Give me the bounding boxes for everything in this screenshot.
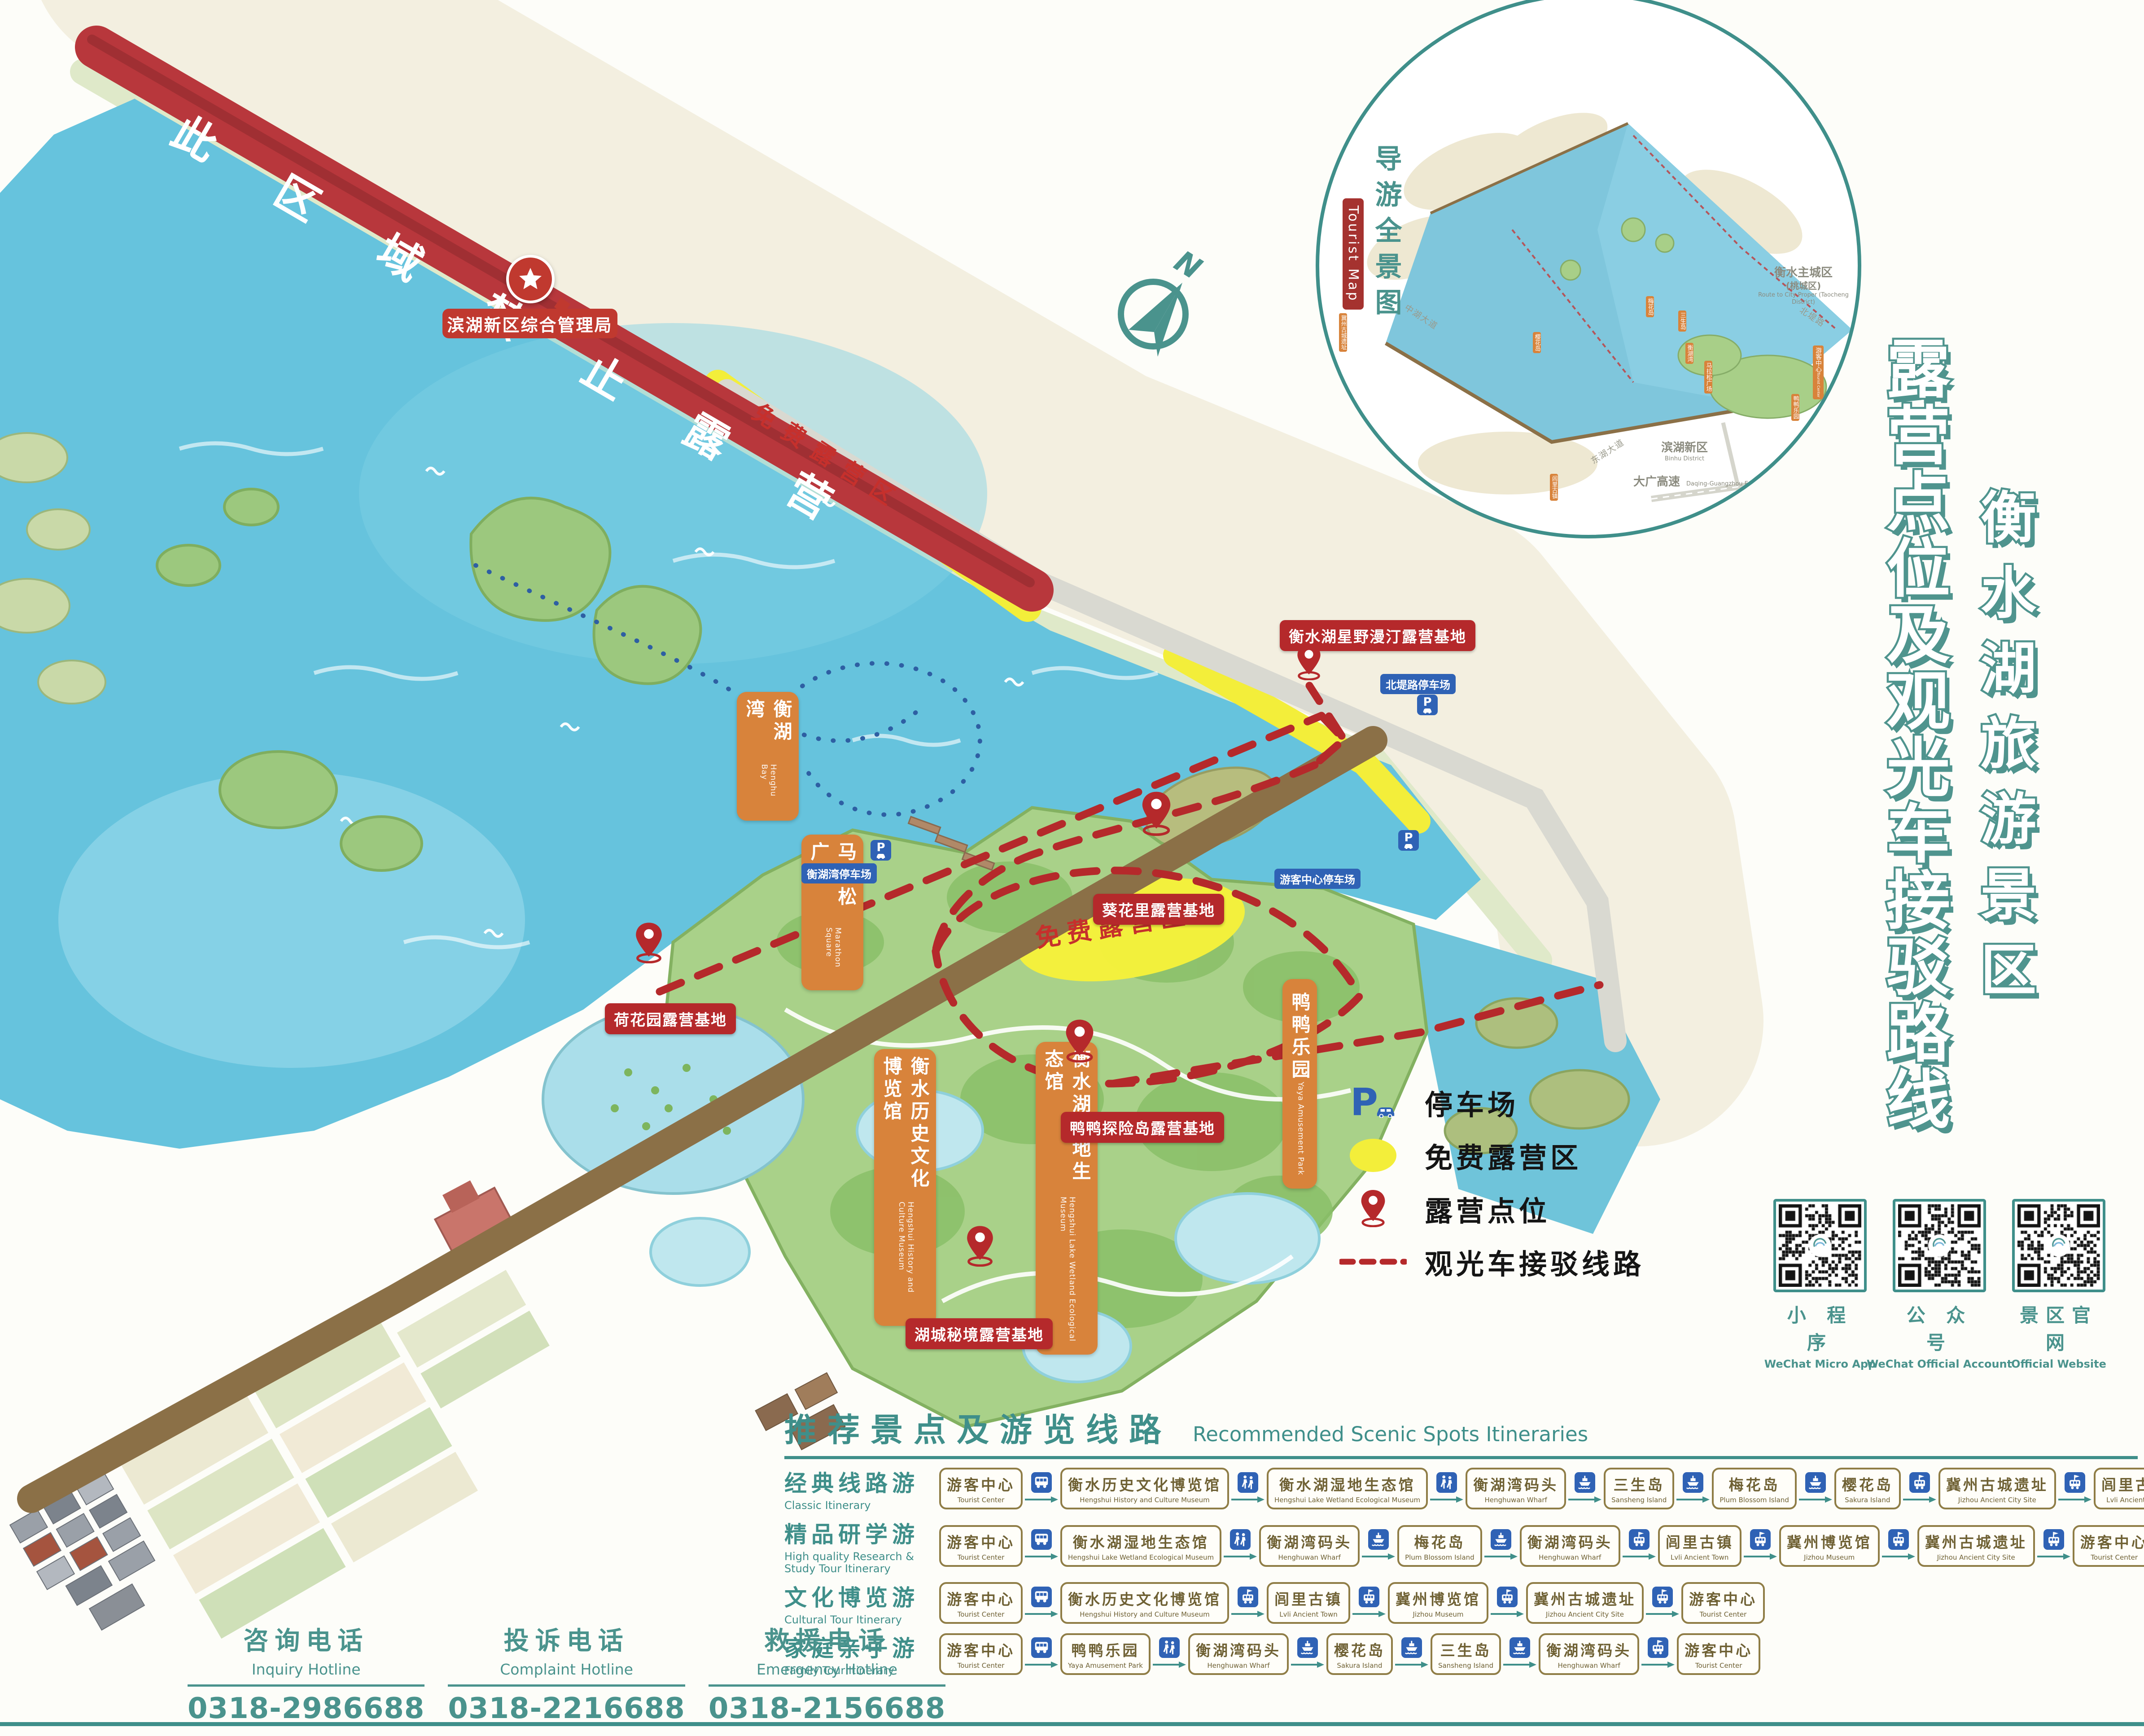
stop-name-zh: 三生岛 — [1614, 1473, 1665, 1495]
inset-poi-tag: 冀州博览馆 — [1335, 376, 1343, 409]
camp-pin-icon — [633, 921, 665, 963]
tram-icon — [2065, 1472, 2085, 1493]
stop-name-en: Henghuwan Wharf — [1539, 1553, 1601, 1561]
tram-icon — [1629, 1529, 1650, 1550]
route-arrow-icon — [1394, 1661, 1429, 1670]
qr-label-zh: 景区官网 — [2011, 1300, 2106, 1355]
itinerary-stop: 闾里古镇Lvli Ancient Town — [1658, 1525, 1741, 1567]
car-icon — [1375, 1106, 1396, 1119]
stop-name-en: Henghuwan Wharf — [1485, 1496, 1547, 1504]
itinerary-row: 家庭亲子游Family Tour Itinerary游客中心Tourist Ce… — [784, 1631, 2138, 1677]
itinerary-stop: 梅花岛Plum Blossom Island — [1712, 1468, 1797, 1509]
stop-name-en: Jizhou Ancient City Site — [1958, 1496, 2036, 1504]
transit-connector — [1024, 1472, 1059, 1505]
route-arrow-icon — [1152, 1661, 1187, 1670]
boat-icon — [1510, 1637, 1530, 1658]
itinerary-stop: 衡水湖湿地生态馆Hengshui Lake Wetland Ecological… — [1060, 1525, 1221, 1567]
tram-icon — [1497, 1587, 1518, 1607]
poster: 此区域禁止露营 免费露营区 免费露营区 滨湖新区综合管理局 N 衡湖湾Hengh… — [0, 0, 2144, 1736]
legend-label: 露营点位 — [1425, 1189, 1550, 1229]
stop-name-zh: 闾里古镇 — [1666, 1530, 1734, 1552]
route-arrow-icon — [1352, 1610, 1387, 1620]
route-arrow-icon — [1290, 1661, 1325, 1670]
stop-name-zh: 冀州博览馆 — [1787, 1530, 1872, 1552]
boat-icon — [1368, 1529, 1389, 1550]
itinerary-stop: 冀州古城遗址Jizhou Ancient City Site — [1917, 1525, 2035, 1567]
qr-label-en: WeChat Micro App — [1764, 1358, 1876, 1370]
stop-name-en: Lvli Ancient Town — [1671, 1553, 1728, 1561]
itinerary-stop: 衡湖湾码头Henghuwan Wharf — [1466, 1468, 1566, 1509]
hotline-item: 咨询电话Inquiry Hotline0318-2986688 — [188, 1621, 424, 1725]
inset-poi-tag: 三生岛 — [1678, 310, 1686, 332]
inset-poi-tag: 梅花岛 — [1646, 296, 1654, 317]
stop-name-zh: 梅花岛 — [1729, 1473, 1780, 1495]
transit-connector — [1902, 1472, 1937, 1505]
transit-connector — [1230, 1472, 1265, 1505]
walk-icon — [1159, 1637, 1180, 1658]
itinerary-row-label: 精品研学游High quality Research & Study Tour … — [784, 1517, 939, 1575]
tram-icon — [1652, 1587, 1673, 1607]
itinerary-title-zh: 推荐景点及游览线路 — [784, 1404, 1172, 1451]
itinerary-row: 文化博览游Cultural Tour Itinerary游客中心Tourist … — [784, 1580, 2138, 1627]
itinerary-stop: 游客中心Tourist Center — [1677, 1633, 1760, 1675]
poster-main-title: 露营点位及观光车接驳路线 — [1866, 336, 1958, 1133]
camp-site-label: 荷花园露营基地 — [605, 1003, 736, 1034]
stop-name-zh: 衡水历史文化博览馆 — [1068, 1587, 1221, 1609]
inset-tag: Tourist Map — [1343, 198, 1364, 310]
stop-name-en: Tourist Center — [958, 1662, 1005, 1670]
route-arrow-icon — [1230, 1610, 1265, 1620]
stop-name-zh: 衡湖湾码头 — [1546, 1639, 1632, 1660]
itinerary-stop: 闾里古镇Lvli Ancient Town — [2094, 1468, 2144, 1509]
route-arrow-icon — [1024, 1610, 1059, 1620]
boat-icon — [1805, 1472, 1826, 1493]
transit-connector — [1230, 1587, 1265, 1620]
hotline-label-zh: 投诉电话 — [504, 1621, 630, 1657]
route-arrow-icon — [1645, 1610, 1680, 1620]
itinerary-section: 推荐景点及游览线路 Recommended Scenic Spots Itine… — [784, 1404, 2138, 1677]
boat-icon — [1401, 1637, 1422, 1658]
itinerary-stop: 樱花岛Sakura Island — [1834, 1468, 1901, 1509]
tram-icon — [1750, 1529, 1771, 1550]
poi-label-zh: 马拉松广场 — [805, 842, 860, 927]
tram-icon — [1909, 1472, 1930, 1493]
itinerary-row: 经典线路游Classic Itinerary游客中心Tourist Center… — [784, 1465, 2138, 1512]
hotline-divider — [188, 1684, 424, 1687]
stop-name-zh: 游客中心 — [947, 1587, 1015, 1609]
hotline-label-en: Inquiry Hotline — [252, 1661, 361, 1678]
stop-name-en: Hengshui Lake Wetland Ecological Museum — [1274, 1496, 1420, 1504]
itinerary-stop: 游客中心Tourist Center — [939, 1468, 1023, 1509]
qr-code-image — [2017, 1204, 2100, 1287]
poi-label: 衡水湖湿地生态馆Hengshui Lake Wetland Ecological… — [1036, 1042, 1098, 1355]
route-arrow-icon — [1024, 1552, 1059, 1562]
route-arrow-icon — [2057, 1495, 2092, 1505]
row-label-zh: 精品研学游 — [784, 1517, 939, 1549]
stop-name-zh: 三生岛 — [1440, 1639, 1492, 1660]
transit-connector — [1429, 1472, 1464, 1505]
stop-name-zh: 衡水历史文化博览馆 — [1068, 1473, 1221, 1495]
stop-name-zh: 游客中心 — [1689, 1587, 1757, 1609]
route-arrow-icon — [1676, 1495, 1711, 1505]
itinerary-header: 推荐景点及游览线路 Recommended Scenic Spots Itine… — [784, 1404, 2138, 1451]
row-label-en: Classic Itinerary — [784, 1500, 939, 1512]
poi-label: 鸭鸭乐园Yaya Amusement Park — [1282, 979, 1317, 1189]
itinerary-stop: 闾里古镇Lvli Ancient Town — [1267, 1582, 1350, 1624]
camp-site-label: 湖城秘境露营基地 — [906, 1318, 1053, 1349]
camp-pin-icon — [1358, 1188, 1388, 1229]
route-arrow-icon — [1024, 1495, 1059, 1505]
legend-icon-free-camp — [1339, 1139, 1407, 1172]
parking-icon: P — [1398, 830, 1419, 851]
inset-area-zh: 衡水主城区 — [1749, 266, 1858, 280]
itinerary-stop: 樱花岛Sakura Island — [1326, 1633, 1393, 1675]
inset-title: 导游全景图 — [1367, 144, 1406, 324]
itinerary-stop: 冀州古城遗址Jizhou Ancient City Site — [1526, 1582, 1644, 1624]
route-arrow-icon — [2036, 1552, 2071, 1562]
stop-name-en: Plum Blossom Island — [1720, 1496, 1789, 1504]
camp-pin-icon — [1139, 790, 1174, 836]
stop-name-en: Sansheng Island — [1438, 1662, 1493, 1670]
qr-panel: 小 程 序WeChat Micro App公 众 号WeChat Officia… — [1772, 1199, 2106, 1370]
route-arrow-icon — [1641, 1661, 1676, 1670]
stop-name-zh: 游客中心 — [947, 1530, 1015, 1552]
stop-name-en: Jizhou Ancient City Site — [1546, 1610, 1624, 1618]
legend-icon-shuttle-route — [1339, 1257, 1407, 1266]
stop-name-zh: 衡湖湾码头 — [1267, 1530, 1352, 1552]
itinerary-stop: 衡水历史文化博览馆Hengshui History and Culture Mu… — [1060, 1582, 1229, 1624]
legend-label: 免费露营区 — [1425, 1135, 1582, 1176]
itinerary-stop: 游客中心Tourist Center — [1681, 1582, 1765, 1624]
itinerary-stop: 三生岛Sansheng Island — [1431, 1633, 1501, 1675]
walk-icon — [1238, 1472, 1258, 1493]
row-label-en: High quality Research & Study Tour Itine… — [784, 1551, 939, 1575]
transit-connector — [1361, 1529, 1396, 1562]
inset-area-sub: (桃城区) — [1749, 280, 1858, 292]
hotline-divider — [709, 1684, 945, 1687]
inset-area-label: 大广高速Daqing-Guangzhou Expressway — [1633, 475, 1779, 490]
transit-connector — [1290, 1637, 1325, 1670]
transit-connector — [1352, 1587, 1387, 1620]
transit-connector — [1641, 1637, 1676, 1670]
bus-icon — [1031, 1587, 1052, 1607]
tram-icon — [1648, 1637, 1668, 1658]
camp-pin-icon — [1063, 1018, 1097, 1063]
divider — [784, 1456, 2138, 1459]
parking-label: 衡湖湾停车场 — [801, 863, 877, 883]
itinerary-row-label: 经典线路游Classic Itinerary — [784, 1465, 939, 1512]
transit-connector — [1152, 1637, 1187, 1670]
stop-name-zh: 游客中心 — [947, 1473, 1015, 1495]
itinerary-stop: 游客中心Tourist Center — [939, 1582, 1023, 1624]
qr-label-en: Official Website — [2011, 1358, 2106, 1370]
free-camp-swatch — [1350, 1139, 1396, 1172]
parking-label: 北堤路停车场 — [1380, 674, 1456, 694]
route-arrow-icon — [1902, 1495, 1937, 1505]
transit-connector — [1024, 1637, 1059, 1670]
stop-name-en: Hengshui History and Culture Museum — [1080, 1610, 1209, 1618]
hotline-number: 0318-2986688 — [188, 1692, 424, 1725]
legend-label: 观光车接驳线路 — [1425, 1242, 1645, 1282]
poi-label-en: Henghu Bay — [760, 764, 778, 813]
row-label-zh: 经典线路游 — [784, 1465, 939, 1498]
stop-name-zh: 衡湖湾码头 — [1473, 1473, 1558, 1495]
bottom-divider — [0, 1722, 2144, 1726]
stop-name-en: Tourist Center — [958, 1553, 1005, 1561]
stop-name-en: Hengshui Lake Wetland Ecological Museum — [1068, 1553, 1214, 1561]
stop-name-zh: 衡水湖湿地生态馆 — [1279, 1473, 1416, 1495]
stop-name-en: Henghuwan Wharf — [1278, 1553, 1341, 1561]
route-arrow-icon — [1230, 1495, 1265, 1505]
poi-label-en: Hengshui Lake Wetland Ecological Museum — [1059, 1197, 1076, 1347]
management-bureau-label: 滨湖新区综合管理局 — [442, 309, 617, 338]
stop-name-en: Tourist Center — [958, 1610, 1005, 1618]
bus-icon — [1031, 1637, 1052, 1658]
management-star-marker — [506, 255, 555, 303]
legend-icon-camp-pin — [1339, 1188, 1407, 1229]
transit-connector — [2036, 1529, 2071, 1562]
stop-name-en: Plum Blossom Island — [1405, 1553, 1475, 1561]
route-arrow-icon — [1622, 1552, 1657, 1562]
itinerary-stop: 衡湖湾码头Henghuwan Wharf — [1520, 1525, 1620, 1567]
stop-name-en: Lvli Ancient Town — [2106, 1496, 2144, 1504]
route-arrow-icon — [1483, 1552, 1518, 1562]
parking-icon: P — [871, 840, 891, 861]
stop-name-zh: 樱花岛 — [1334, 1639, 1385, 1660]
hotline-divider — [448, 1684, 685, 1687]
transit-connector — [1223, 1529, 1258, 1562]
transit-connector — [1502, 1637, 1537, 1670]
inset-tourist-center-tag: 游客中心Tourist Center — [1813, 345, 1824, 399]
qr-label-en: WeChat Official Account — [1867, 1358, 2012, 1370]
stop-name-en: Sakura Island — [1337, 1662, 1382, 1670]
inset-area-en: Daqing-Guangzhou Expressway — [1686, 481, 1779, 488]
qr-label-zh: 公 众 号 — [1892, 1300, 1987, 1355]
stop-name-zh: 衡湖湾码头 — [1527, 1530, 1613, 1552]
boat-icon — [1491, 1529, 1511, 1550]
stop-name-zh: 闾里古镇 — [1274, 1587, 1343, 1609]
transit-connector — [1394, 1637, 1429, 1670]
walk-icon — [1436, 1472, 1457, 1493]
qr-code-image — [1898, 1204, 1981, 1287]
inset-overview-map: 导游全景图 Tourist Map 衡水主城区(桃城区)Route to Cit… — [1316, 0, 1861, 538]
camp-site-label: 葵花里露营基地 — [1093, 894, 1224, 925]
poi-label: 衡水历史文化博览馆Hengshui History and Culture Mu… — [874, 1049, 936, 1326]
stop-name-en: Tourist Center — [1700, 1610, 1747, 1618]
stop-name-zh: 衡水湖湿地生态馆 — [1073, 1530, 1209, 1552]
stop-name-zh: 游客中心 — [947, 1639, 1015, 1660]
stop-name-zh: 游客中心 — [1685, 1639, 1753, 1660]
stop-name-zh: 冀州古城遗址 — [1925, 1530, 2027, 1552]
legend-item: P停车场 — [1339, 1082, 1645, 1123]
camp-pin-icon — [964, 1224, 996, 1267]
itinerary-stop: 梅花岛Plum Blossom Island — [1397, 1525, 1482, 1567]
stop-name-en: Hengshui History and Culture Museum — [1080, 1496, 1209, 1504]
parking-label: 游客中心停车场 — [1274, 869, 1361, 889]
poi-label-en: Marathon Square — [824, 927, 842, 983]
tram-icon — [1888, 1529, 1909, 1550]
qr-block: 公 众 号WeChat Official Account — [1892, 1199, 1987, 1370]
qr-code — [1893, 1199, 1986, 1292]
qr-code — [2012, 1199, 2105, 1292]
qr-label-zh: 小 程 序 — [1772, 1300, 1868, 1355]
stop-name-zh: 冀州古城遗址 — [1946, 1473, 2048, 1495]
hotline-label-en: Emergency Hotline — [757, 1661, 897, 1678]
poi-label-zh: 衡水历史文化博览馆 — [878, 1056, 932, 1202]
stop-name-en: Henghuwan Wharf — [1558, 1662, 1620, 1670]
boat-icon — [1575, 1472, 1595, 1493]
stop-name-zh: 冀州博览馆 — [1396, 1587, 1481, 1609]
stop-name-zh: 樱花岛 — [1842, 1473, 1893, 1495]
transit-connector — [1645, 1587, 1680, 1620]
transit-connector — [1798, 1472, 1833, 1505]
walk-icon — [1230, 1529, 1251, 1550]
stop-name-en: Tourist Center — [1695, 1662, 1742, 1670]
stop-name-en: Henghuwan Wharf — [1207, 1662, 1269, 1670]
transit-connector — [1622, 1529, 1657, 1562]
itinerary-stop: 衡湖湾码头Henghuwan Wharf — [1188, 1633, 1289, 1675]
stop-name-en: Jizhou Ancient City Site — [1937, 1553, 2015, 1561]
camp-site-label: 鸭鸭探险岛露营基地 — [1061, 1112, 1224, 1143]
bus-icon — [1031, 1472, 1052, 1493]
transit-connector — [1743, 1529, 1778, 1562]
itinerary-stop: 冀州古城遗址Jizhou Ancient City Site — [1938, 1468, 2056, 1509]
inset-poi-tag: 闾里古镇 — [1550, 474, 1558, 501]
inset-poi-tag: 樱花岛 — [1533, 332, 1541, 353]
inset-area-label: 衡水主城区(桃城区)Route to City Proper (Taocheng… — [1749, 266, 1858, 306]
stop-name-en: Tourist Center — [2091, 1553, 2138, 1561]
qr-block: 景区官网Official Website — [2011, 1199, 2106, 1370]
star-icon — [517, 266, 544, 293]
itinerary-stop: 游客中心Tourist Center — [939, 1633, 1023, 1675]
inset-area-en: Binhu District — [1661, 455, 1708, 463]
stop-name-en: Lvli Ancient Town — [1279, 1610, 1337, 1618]
parking-icon: P — [1417, 695, 1438, 715]
itinerary-stop: 衡湖湾码头Henghuwan Wharf — [1259, 1525, 1360, 1567]
hotlines: 咨询电话Inquiry Hotline0318-2986688投诉电话Compl… — [188, 1621, 945, 1725]
hotline-item: 救援电话Emergency Hotline0318-2156688 — [709, 1621, 945, 1725]
hotline-label-en: Complaint Hotline — [500, 1661, 633, 1678]
hotline-label-zh: 救援电话 — [764, 1621, 890, 1657]
qr-block: 小 程 序WeChat Micro App — [1772, 1199, 1868, 1370]
inset-area-zh: 滨湖新区 — [1661, 441, 1708, 455]
route-arrow-icon — [1881, 1552, 1916, 1562]
transit-connector — [1490, 1587, 1525, 1620]
stop-name-zh: 鸭鸭乐园 — [1071, 1639, 1139, 1660]
qr-code-image — [1779, 1204, 1861, 1287]
transit-connector — [1676, 1472, 1711, 1505]
hotline-item: 投诉电话Complaint Hotline0318-2216688 — [448, 1621, 685, 1725]
stop-name-en: Sansheng Island — [1611, 1496, 1667, 1504]
itinerary-stop: 游客中心Tourist Center — [939, 1525, 1023, 1567]
route-arrow-icon — [1429, 1495, 1464, 1505]
transit-connector — [1567, 1472, 1602, 1505]
route-arrow-icon — [1798, 1495, 1833, 1505]
tram-icon — [1359, 1587, 1379, 1607]
poi-label-zh: 鸭鸭乐园 — [1286, 992, 1313, 1082]
stop-name-en: Tourist Center — [958, 1496, 1005, 1504]
legend-item: 露营点位 — [1339, 1188, 1645, 1229]
stop-name-zh: 闾里古镇 — [2101, 1473, 2144, 1495]
itinerary-row: 精品研学游High quality Research & Study Tour … — [784, 1517, 2138, 1575]
row-label-zh: 文化博览游 — [784, 1580, 939, 1612]
itinerary-title-en: Recommended Scenic Spots Itineraries — [1193, 1422, 1588, 1446]
dashed-route-icon — [1339, 1257, 1407, 1266]
route-arrow-icon — [1490, 1610, 1525, 1620]
stop-name-zh: 梅花岛 — [1414, 1530, 1465, 1552]
hotline-number: 0318-2156688 — [709, 1692, 945, 1725]
route-arrow-icon — [1024, 1661, 1059, 1670]
route-arrow-icon — [1743, 1552, 1778, 1562]
hotline-number: 0318-2216688 — [448, 1692, 685, 1725]
tram-icon — [2043, 1529, 2064, 1550]
transit-connector — [1483, 1529, 1518, 1562]
stop-name-zh: 游客中心 — [2080, 1530, 2144, 1552]
itinerary-stop: 游客中心Tourist Center — [2073, 1525, 2144, 1567]
map-legend: P停车场免费露营区露营点位观光车接驳线路 — [1339, 1082, 1645, 1282]
itinerary-row-label: 文化博览游Cultural Tour Itinerary — [784, 1580, 939, 1627]
legend-item: 观光车接驳线路 — [1339, 1242, 1645, 1282]
inset-poi-tag: 马拉松广场 — [1704, 361, 1712, 394]
stop-name-zh: 衡湖湾码头 — [1196, 1639, 1281, 1660]
stop-name-en: Sakura Island — [1845, 1496, 1890, 1504]
legend-label: 停车场 — [1425, 1082, 1519, 1123]
inset-area-zh: 大广高速 — [1633, 475, 1680, 490]
route-arrow-icon — [1567, 1495, 1602, 1505]
boat-icon — [1683, 1472, 1703, 1493]
stop-name-en: Jizhou Museum — [1804, 1553, 1855, 1561]
poi-label: 马拉松广场Marathon Square — [801, 835, 863, 990]
site-name-title: 衡水湖旅游景区 — [1963, 488, 2043, 1016]
itinerary-stop: 三生岛Sansheng Island — [1604, 1468, 1674, 1509]
stop-name-zh: 冀州古城遗址 — [1534, 1587, 1636, 1609]
route-arrow-icon — [1502, 1661, 1537, 1670]
camp-pin-icon — [1295, 643, 1323, 680]
qr-code — [1773, 1199, 1867, 1292]
transit-connector — [1024, 1529, 1059, 1562]
poi-label: 衡湖湾Henghu Bay — [737, 692, 799, 821]
itinerary-stop: 冀州博览馆Jizhou Museum — [1779, 1525, 1880, 1567]
legend-icon-parking: P — [1339, 1085, 1407, 1119]
inset-poi-tag: 鸭鸭乐园 — [1791, 394, 1799, 421]
itinerary-stop: 衡湖湾码头Henghuwan Wharf — [1539, 1633, 1639, 1675]
parking-p-icon: P — [1350, 1085, 1378, 1119]
route-arrow-icon — [1223, 1552, 1258, 1562]
transit-connector — [1024, 1587, 1059, 1620]
itinerary-stop: 衡水历史文化博览馆Hengshui History and Culture Mu… — [1060, 1468, 1229, 1509]
poi-label-en: Yaya Amusement Park — [1296, 1082, 1305, 1175]
itinerary-stop: 衡水湖湿地生态馆Hengshui Lake Wetland Ecological… — [1267, 1468, 1428, 1509]
itinerary-stop: 鸭鸭乐园Yaya Amusement Park — [1060, 1633, 1151, 1675]
hotline-label-zh: 咨询电话 — [243, 1621, 369, 1657]
transit-connector — [1881, 1529, 1916, 1562]
boat-icon — [1297, 1637, 1318, 1658]
legend-item: 免费露营区 — [1339, 1135, 1645, 1176]
route-arrow-icon — [1361, 1552, 1396, 1562]
stop-name-en: Yaya Amusement Park — [1068, 1662, 1143, 1670]
stop-name-en: Jizhou Museum — [1413, 1610, 1463, 1618]
inset-area-label: 滨湖新区Binhu District — [1661, 441, 1708, 463]
itinerary-stop: 冀州博览馆Jizhou Museum — [1388, 1582, 1488, 1624]
poi-label-en: Hengshui History and Culture Museum — [897, 1202, 915, 1319]
transit-connector — [2057, 1472, 2092, 1505]
inset-poi-tag: 冀州古城遗址 — [1339, 313, 1347, 352]
bus-icon — [1031, 1529, 1052, 1550]
inset-poi-tag: 衡湖湾 — [1685, 343, 1693, 364]
tram-icon — [1238, 1587, 1258, 1607]
poi-label-zh: 衡湖湾 — [740, 699, 795, 764]
